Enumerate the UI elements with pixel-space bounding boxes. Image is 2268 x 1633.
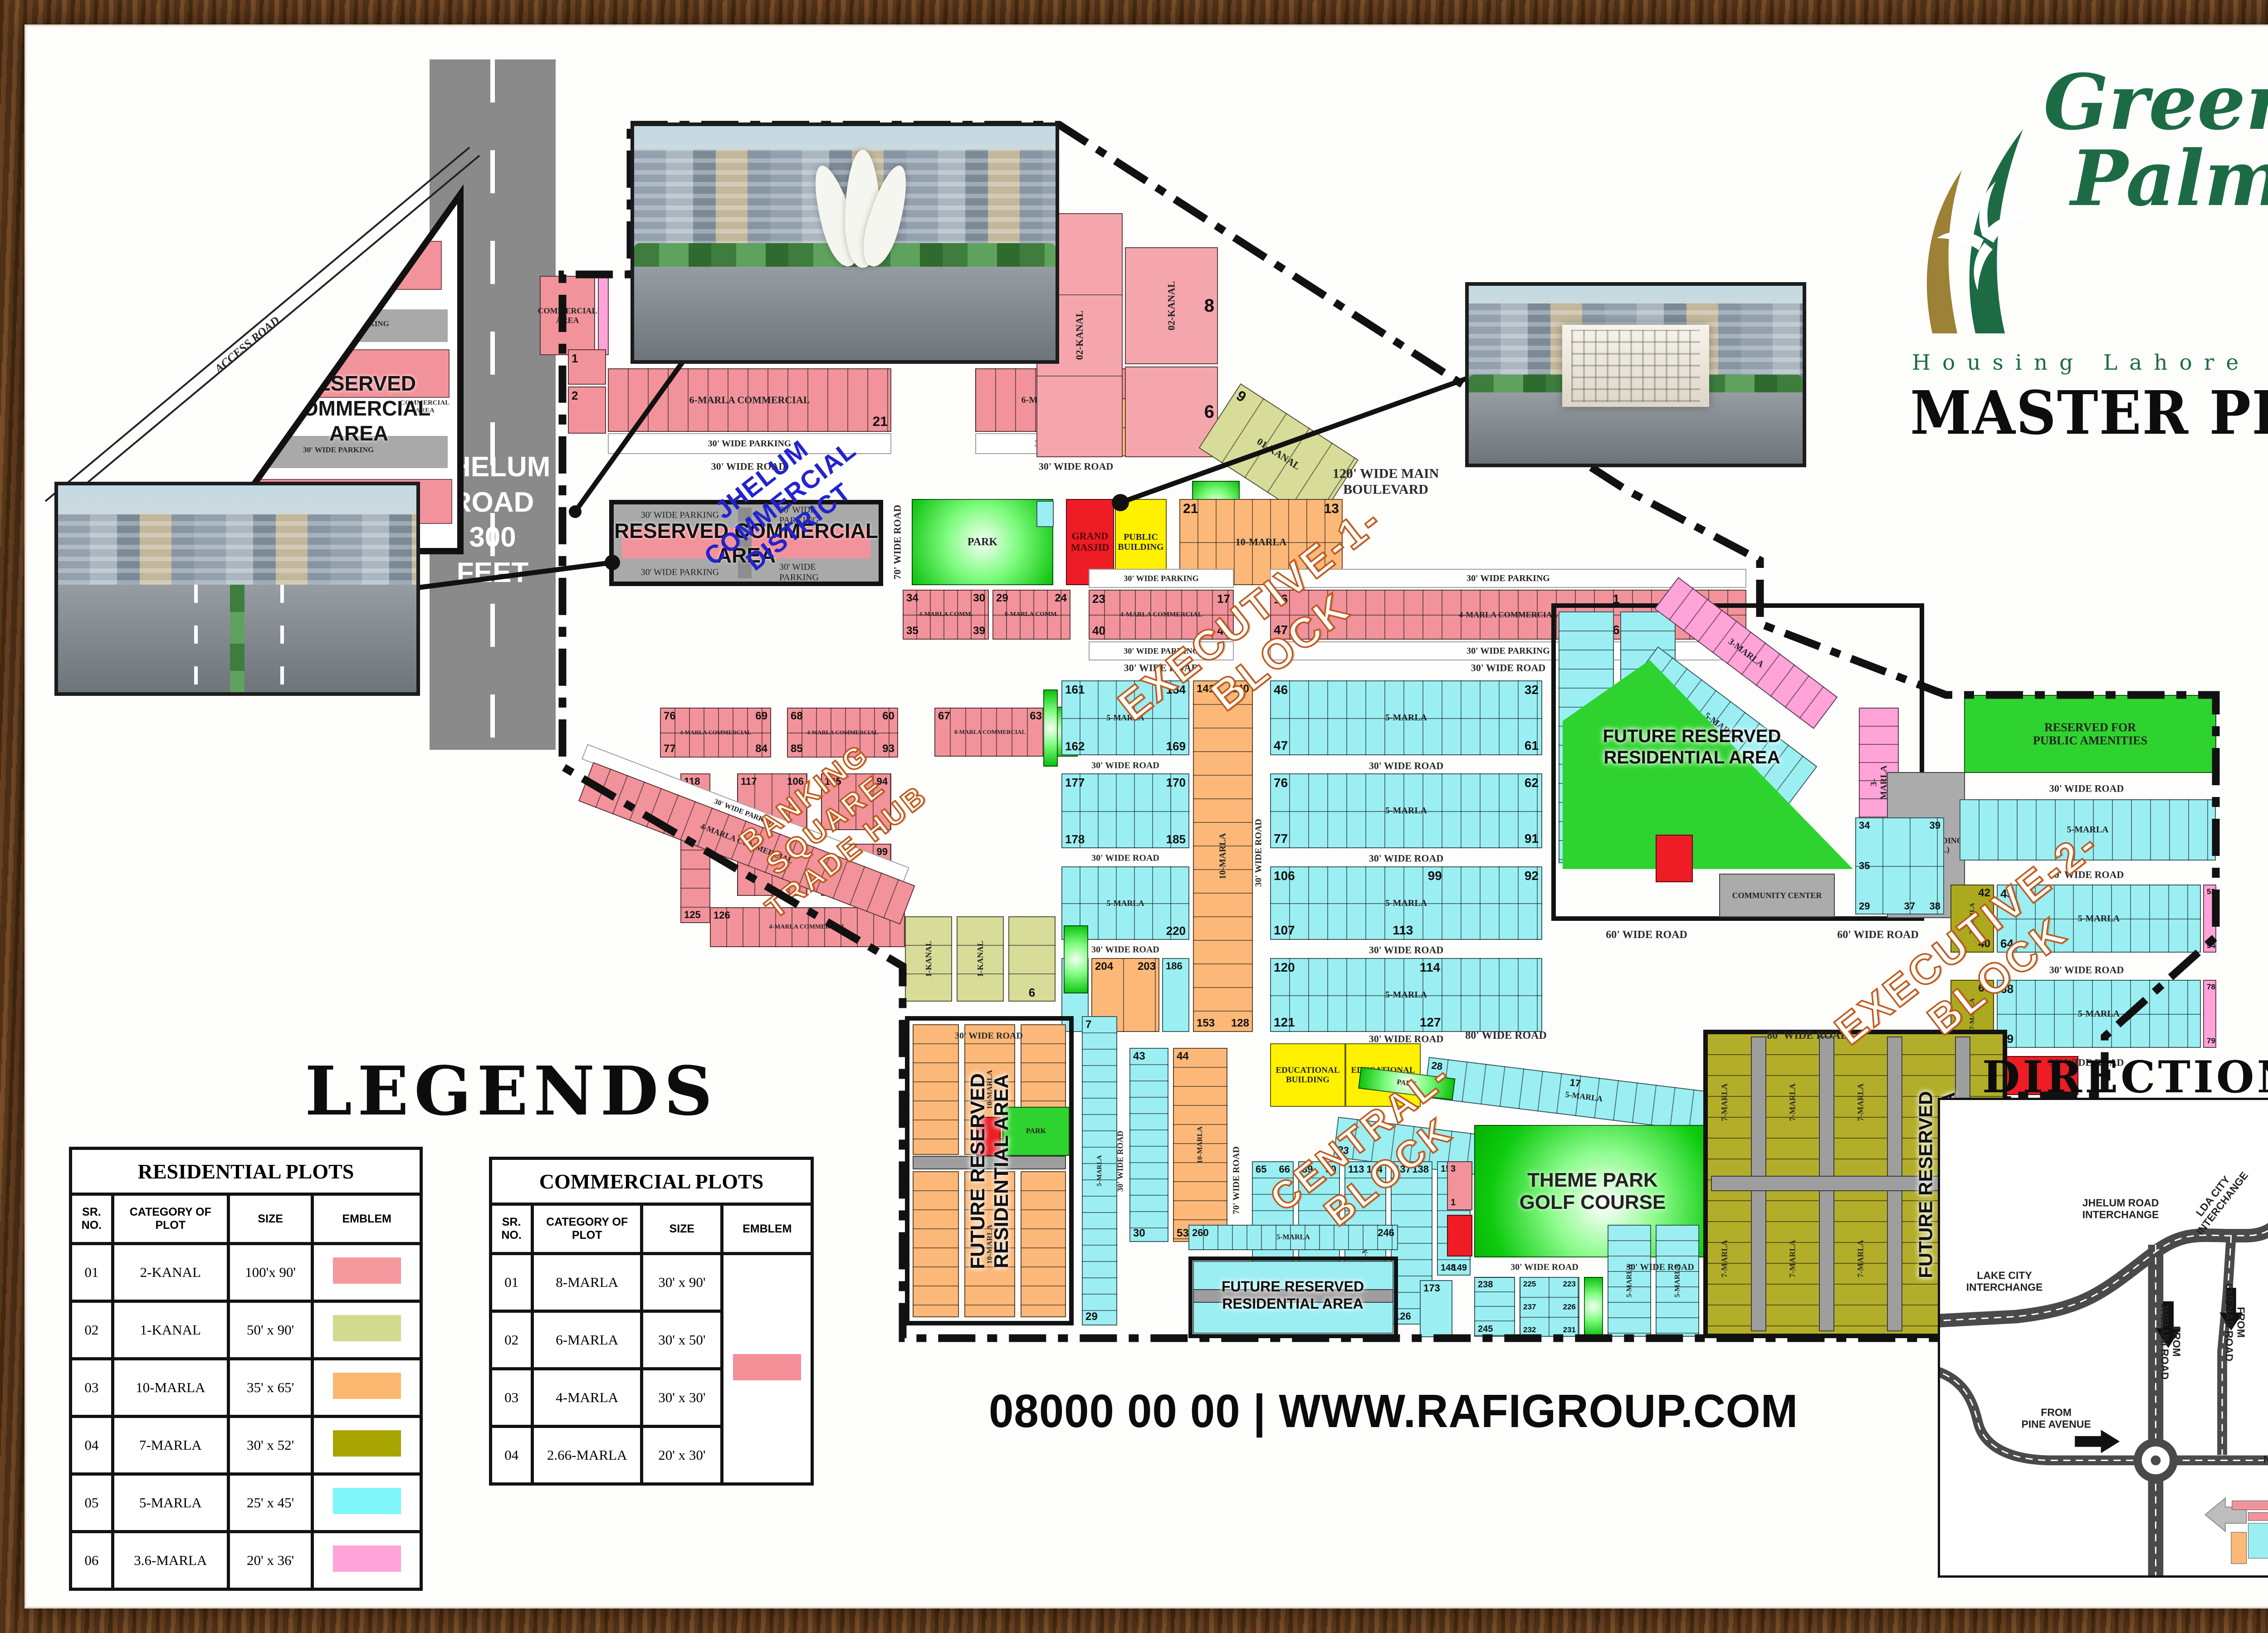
block-title: FUTURE RESERVED RESIDENTIAL AREA	[1193, 1278, 1393, 1313]
plot-number: 153	[1197, 1018, 1215, 1029]
plot-number: 77	[1274, 832, 1288, 845]
emblem-cell	[313, 1301, 421, 1359]
plot-block: 31	[1447, 1161, 1472, 1210]
plot-strip: 5-MARLA	[1656, 1225, 1699, 1337]
plot-number: 203	[1138, 961, 1156, 972]
plot-number: 185	[1166, 833, 1186, 845]
sr-cell: 04	[71, 1417, 113, 1474]
plot-number: 149	[1452, 1263, 1467, 1272]
render-photo-boulevard	[54, 482, 420, 696]
column-header: CATEGORY OF PLOT	[533, 1204, 642, 1254]
plot-block	[1043, 689, 1058, 767]
plot-number: 260	[1192, 1228, 1209, 1238]
plot-strip: PARK	[912, 499, 1053, 585]
plot-number: 2	[572, 390, 578, 401]
road-label: 30' WIDE ROAD	[1471, 662, 1546, 673]
plot-strip: 5-MARLA76627791	[1270, 773, 1542, 848]
plot-number: 6	[1204, 403, 1214, 421]
plot-block: 225223237226232231	[1520, 1277, 1579, 1337]
plot-number: 114	[1420, 961, 1440, 974]
plot-number: 232	[1523, 1326, 1536, 1334]
plot-number: 127	[1420, 1016, 1441, 1029]
plot-number: 245	[1478, 1325, 1493, 1334]
content-layer: JHELUM ROAD 300 FEET 30' WIDE PARKING 30…	[0, 0, 2268, 1633]
plot-label: 5-MARLA	[1271, 774, 1541, 847]
color-swatch	[333, 1373, 401, 1399]
plot-number: 35	[1859, 861, 1870, 871]
size-cell: 50' x 90'	[228, 1301, 313, 1359]
plot-label: 4-MARLA COMMERCIAL	[661, 709, 770, 757]
plot-number: 35	[906, 626, 919, 636]
road-label: 30' WIDE ROAD	[1626, 1262, 1694, 1273]
size-cell: 30' x 90'	[642, 1254, 722, 1311]
plot-block: 2	[568, 386, 606, 434]
contact-footer: 08000 00 00 | WWW.RAFIGROUP.COM	[989, 1384, 1808, 1438]
plot-number: 24	[1055, 593, 1067, 604]
plot-strip: 4-MARLA COMM.34353039	[903, 590, 989, 640]
plot-number: 54	[2207, 942, 2215, 949]
sr-cell: 06	[71, 1532, 113, 1589]
plot-number: 1	[1451, 1198, 1456, 1207]
plot-number: 32	[1525, 684, 1539, 696]
plot-number: 76	[664, 711, 676, 722]
road-label: 7-MARLA	[1856, 1240, 1866, 1278]
plot-number: 76	[1274, 777, 1288, 789]
plot-number: 84	[755, 743, 767, 754]
lane-marking	[194, 585, 198, 692]
gold-leaf	[1927, 170, 1962, 333]
color-swatch	[333, 1315, 401, 1341]
sr-cell: 02	[491, 1311, 533, 1369]
plot-block	[1584, 1277, 1603, 1337]
plot-strip: 1-KANAL	[957, 916, 1004, 1002]
category-cell: 4-MARLA	[533, 1369, 642, 1427]
column-header: EMBLEM	[313, 1194, 421, 1244]
road-label: 30' WIDE ROAD	[1369, 944, 1444, 955]
lane-marking	[280, 585, 284, 692]
column-header: CATEGORY OF PLOT	[112, 1194, 228, 1244]
plot-label: 5-MARLA	[1271, 681, 1541, 754]
plot-strip: 10-MARLA4453	[1173, 1048, 1227, 1242]
plot-number: 68	[791, 711, 803, 722]
median-green	[230, 585, 244, 692]
plot-strip: COMMERCIAL AREA	[540, 276, 595, 355]
emblem-cell	[313, 1244, 421, 1301]
road-label: 30' WIDE ROAD	[1254, 819, 1264, 887]
road-label: 7-MARLA	[1788, 1240, 1798, 1278]
plot-number: 47	[1274, 739, 1288, 752]
plot-number: 38	[1930, 901, 1941, 911]
plot-number: 238	[1478, 1280, 1493, 1289]
plot-number: 65	[1256, 1164, 1266, 1174]
plot-label: 5-MARLA	[1271, 959, 1541, 1031]
plot-strip: 5-MARLA120114121127	[1270, 958, 1542, 1032]
logo-word-palms: Palms	[2071, 144, 2268, 213]
block-title: FUTURE RESERVED RESIDENTIAL AREA	[966, 1062, 1013, 1280]
directional-map: GAJJU MATAH INTERCHANGELDA CITY INTERCHA…	[1938, 1098, 2268, 1578]
sr-cell: 01	[491, 1254, 533, 1311]
road-label: 30' WIDE ROAD	[2049, 964, 2124, 975]
category-cell: 3.6-MARLA	[112, 1532, 228, 1589]
plot-number: 128	[1231, 1018, 1249, 1029]
road-label: 30' WIDE ROAD	[955, 1031, 1023, 1041]
logo-word-green: Green	[2043, 68, 2268, 137]
brand-logo: Green Palms Housing Lahore MASTER PLAN	[1907, 68, 2268, 449]
plot-block	[1021, 1171, 1066, 1317]
plot-number: 204	[1095, 961, 1113, 972]
road-label: 7-MARLA	[1720, 1240, 1730, 1278]
directional-map-label: LAKE CITY INTERCHANGE	[1966, 1270, 2043, 1294]
plot-number: 17	[1569, 1077, 1581, 1089]
directional-map-label: FROM CHENAB ROAD	[2223, 1283, 2247, 1362]
plot-number: 39	[973, 626, 985, 636]
plot-block: 4330	[1129, 1048, 1168, 1242]
plot-block	[598, 276, 609, 355]
plot-label: EDUCATIONAL BUILDING	[1271, 1044, 1344, 1106]
plot-number: 226	[1563, 1303, 1576, 1311]
plot-number: 30	[973, 593, 985, 604]
plot-block: 5354	[2203, 885, 2216, 953]
plot-number: 23	[1092, 593, 1105, 605]
plot-number: 29	[996, 593, 1008, 604]
column-header: SR. NO.	[71, 1194, 113, 1244]
plot-number: 9	[1234, 388, 1248, 405]
table-title: RESIDENTIAL PLOTS	[71, 1149, 421, 1194]
plot-block	[913, 1171, 959, 1317]
plot-strip: 8-MARLA COMM.2924	[992, 590, 1070, 640]
render-photo-mosque	[1465, 282, 1806, 467]
plot-label: COMMUNITY CENTER	[1720, 875, 1834, 916]
plot-block	[913, 1024, 959, 1155]
plot-number: 78	[2207, 983, 2215, 991]
plot-number: 6	[1029, 987, 1035, 998]
plot-block: 1	[568, 349, 606, 385]
plot-block: 343935293738	[1855, 817, 1944, 914]
plot-number: 43	[1133, 1051, 1145, 1062]
table-row: 01 2-KANAL 100'x 90'	[71, 1244, 421, 1301]
size-cell: 100'x 90'	[228, 1244, 313, 1301]
sr-cell: 03	[491, 1369, 533, 1427]
road-label: 30' WIDE ROAD	[1369, 1033, 1444, 1044]
plot-number: 120	[1274, 961, 1295, 974]
emblem-cell	[313, 1474, 421, 1532]
photo-plaza	[634, 267, 1056, 360]
directional-map-label: FROM JHELUM ROAD	[2159, 1303, 2183, 1380]
plot-strip: 5-MARLA1069992107113	[1270, 866, 1542, 940]
plot-block	[1447, 1215, 1472, 1257]
plot-label: 30' WIDE PARKING	[1090, 570, 1233, 587]
plot-strip: 30' WIDE PARKING	[1089, 569, 1234, 588]
plot-number: 246	[1378, 1228, 1394, 1238]
photo-buildings	[58, 514, 416, 585]
plot-number: 237	[1523, 1303, 1536, 1311]
sr-cell: 05	[71, 1474, 113, 1532]
plot-block	[1656, 835, 1693, 882]
plot-number: 29	[1085, 1311, 1098, 1322]
size-cell: 25' x 45'	[228, 1474, 313, 1532]
plot-number: 34	[1859, 821, 1870, 831]
plot-number: 62	[1525, 777, 1539, 789]
plot-number: 162	[1065, 740, 1085, 752]
size-cell: 30' x 30'	[642, 1369, 722, 1427]
size-cell: 20' x 30'	[642, 1427, 722, 1484]
master-plan-title: MASTER PLAN	[1910, 377, 2268, 448]
plot-number: 61	[1525, 739, 1539, 752]
category-cell: 2.66-MARLA	[533, 1427, 642, 1484]
plot-number: 161	[1065, 684, 1085, 695]
logo-subtitle: Housing Lahore	[1912, 350, 2250, 375]
plot-number: 91	[1525, 832, 1539, 845]
plot-number: 63	[1030, 711, 1042, 722]
plot-number: 113	[1393, 924, 1413, 937]
sr-cell: 01	[71, 1244, 113, 1301]
size-cell: 20' x 36'	[228, 1532, 313, 1589]
road-label: 7-MARLA	[1788, 1084, 1798, 1121]
color-swatch	[733, 1354, 801, 1380]
mini-master-plan	[2205, 1498, 2268, 1569]
category-cell: 2-KANAL	[112, 1244, 228, 1301]
plot-label: COMMERCIAL AREA	[541, 277, 594, 354]
plot-number: 1	[572, 352, 578, 364]
plot-number: 53	[1177, 1228, 1189, 1239]
plot-number: 170	[1166, 777, 1186, 788]
table-row: 06 3.6-MARLA 20' x 36'	[71, 1532, 421, 1589]
size-cell: 30' x 50'	[642, 1311, 722, 1369]
table-row: 01 8-MARLA 30' x 90'	[491, 1254, 812, 1311]
plot-number: 173	[1423, 1283, 1440, 1293]
plot-number: 39	[1930, 821, 1941, 831]
plot-block: 7879	[2203, 980, 2216, 1048]
plot-block: 6	[1008, 916, 1056, 1002]
plot-block	[1064, 925, 1088, 993]
road-label: 60' WIDE ROAD	[1606, 929, 1687, 942]
plot-strip: 5-MARLA729	[1082, 1016, 1117, 1325]
plot-number: 3	[1451, 1164, 1456, 1173]
column-header: SR. NO.	[491, 1204, 533, 1254]
plot-strip: 4-MARLA COMMERCIAL76776984	[660, 708, 771, 758]
sr-cell: 02	[71, 1301, 113, 1359]
plot-number: 69	[755, 711, 767, 722]
color-swatch	[333, 1545, 401, 1572]
plot-number: 106	[1274, 870, 1295, 882]
plot-number: 29	[1859, 901, 1870, 911]
render-photo-entrance	[631, 122, 1059, 364]
residential-plots-table: RESIDENTIAL PLOTS SR. NO. CATEGORY OF PL…	[69, 1147, 423, 1591]
plot-block: 186	[1162, 958, 1189, 1032]
directional-map-label: JHELUM ROAD INTERCHANGE	[2082, 1197, 2159, 1221]
road-label: 30' WIDE ROAD	[1369, 852, 1444, 864]
plot-number: 67	[938, 711, 950, 722]
directional-map-roads	[1940, 1100, 2268, 1575]
plot-number: 79	[2207, 1037, 2215, 1045]
size-cell: 30' x 52'	[228, 1417, 313, 1474]
column-header: SIZE	[642, 1204, 722, 1254]
plot-block: 173	[1420, 1280, 1452, 1337]
plot-label: RESERVED FOR PUBLIC AMENITIES	[1965, 696, 2215, 772]
plot-strip: 02-KANAL8	[1125, 247, 1218, 364]
plot-number: 125	[684, 910, 701, 920]
plot-number: 117	[741, 777, 757, 787]
table-row: 04 7-MARLA 30' x 52'	[71, 1417, 421, 1474]
plot-number: 178	[1065, 833, 1085, 845]
plot-label: 5-MARLA	[1998, 981, 2200, 1047]
road-label: 7-MARLA	[1720, 1084, 1730, 1121]
plot-number: 21	[1183, 502, 1198, 516]
plot-strip: 5-MARLA46324761	[1270, 680, 1542, 755]
plot-strip: 5-MARLA	[1608, 1225, 1651, 1337]
plot-number: 77	[664, 743, 676, 754]
plot-number: 8	[1204, 297, 1214, 315]
table-row: 05 5-MARLA 25' x 45'	[71, 1474, 421, 1532]
palm-logo-icon	[1907, 86, 2057, 340]
plot-number: 225	[1523, 1280, 1536, 1288]
plot-strip: COMMUNITY CENTER	[1719, 874, 1835, 917]
plot-number: 37	[1904, 901, 1915, 911]
column-header: EMBLEM	[722, 1204, 812, 1254]
plot-number: 34	[906, 593, 919, 604]
category-cell: 10-MARLA	[112, 1359, 228, 1417]
plot-number: 223	[1563, 1280, 1576, 1288]
category-cell: 1-KANAL	[112, 1301, 228, 1359]
emblem-cell	[313, 1532, 421, 1589]
emblem-cell	[722, 1254, 812, 1484]
road-label: 30' WIDE ROAD	[1510, 1262, 1579, 1273]
commercial-plots-table: COMMERCIAL PLOTS SR. NO. CATEGORY OF PLO…	[489, 1157, 814, 1486]
plot-number: 186	[1166, 961, 1183, 971]
plot-number: 40	[1092, 625, 1105, 636]
table-row: 02 1-KANAL 50' x 90'	[71, 1301, 421, 1359]
road-label: 30' WIDE ROAD	[1091, 945, 1159, 955]
road-label: 30' WIDE ROAD	[1039, 460, 1114, 472]
plot-strip: EDUCATIONAL BUILDING	[1270, 1043, 1345, 1107]
plot-number: 231	[1563, 1326, 1576, 1334]
road-label: 30' WIDE ROAD	[1116, 1131, 1125, 1192]
plot-number: 92	[1525, 870, 1539, 882]
category-cell: 7-MARLA	[112, 1417, 228, 1474]
plot-number: 85	[791, 743, 803, 754]
road-label: 30' WIDE ROAD	[1369, 760, 1444, 771]
color-swatch	[333, 1430, 401, 1457]
sr-cell: 04	[491, 1427, 533, 1484]
road-label: 60' WIDE ROAD	[1837, 929, 1919, 942]
plot-number: 121	[1274, 1016, 1295, 1029]
plot-number: 30	[1133, 1228, 1145, 1239]
plot-number: 220	[1166, 925, 1186, 937]
directional-map-label: FROM PINE AVENUE	[2021, 1407, 2091, 1431]
plot-strip: 5-MARLA6889	[1997, 980, 2201, 1048]
sr-cell: 03	[71, 1359, 113, 1417]
color-swatch	[333, 1257, 401, 1284]
category-cell: 5-MARLA	[112, 1474, 228, 1532]
legends-title: LEGENDS	[305, 1051, 718, 1130]
road-label: 70' WIDE ROAD	[891, 505, 903, 580]
category-cell: 8-MARLA	[533, 1254, 642, 1311]
plot-strip: RESERVED FOR PUBLIC AMENITIES	[1964, 695, 2216, 773]
column-header: SIZE	[228, 1194, 313, 1244]
category-cell: 6-MARLA	[533, 1311, 642, 1369]
plot-number: 107	[1274, 924, 1295, 937]
emblem-cell	[313, 1417, 421, 1474]
plot-block	[1036, 501, 1054, 527]
plot-number: 53	[2207, 888, 2215, 895]
plot-number: 44	[1177, 1051, 1189, 1062]
plot-number: 7	[1085, 1019, 1091, 1030]
plot-strip: 1-KANAL	[905, 916, 952, 1002]
color-swatch	[333, 1488, 401, 1514]
directional-map-label: NEELAM ROAD	[2263, 1453, 2268, 1465]
road-label: 30' WIDE ROAD	[1091, 853, 1159, 864]
plot-label: PARK	[913, 500, 1052, 584]
plot-number: 99	[1428, 870, 1442, 882]
mosque-building-icon	[1562, 325, 1709, 406]
emblem-cell	[313, 1359, 421, 1417]
plot-number: 177	[1065, 777, 1085, 788]
size-cell: 35' x 65'	[228, 1359, 313, 1417]
table-row: 03 10-MARLA 35' x 65'	[71, 1359, 421, 1417]
block-title: FUTURE RESERVED RESIDENTIAL AREA	[1574, 726, 1810, 768]
plot-block: 238245	[1474, 1277, 1515, 1337]
table-title: COMMERCIAL PLOTS	[491, 1159, 812, 1204]
